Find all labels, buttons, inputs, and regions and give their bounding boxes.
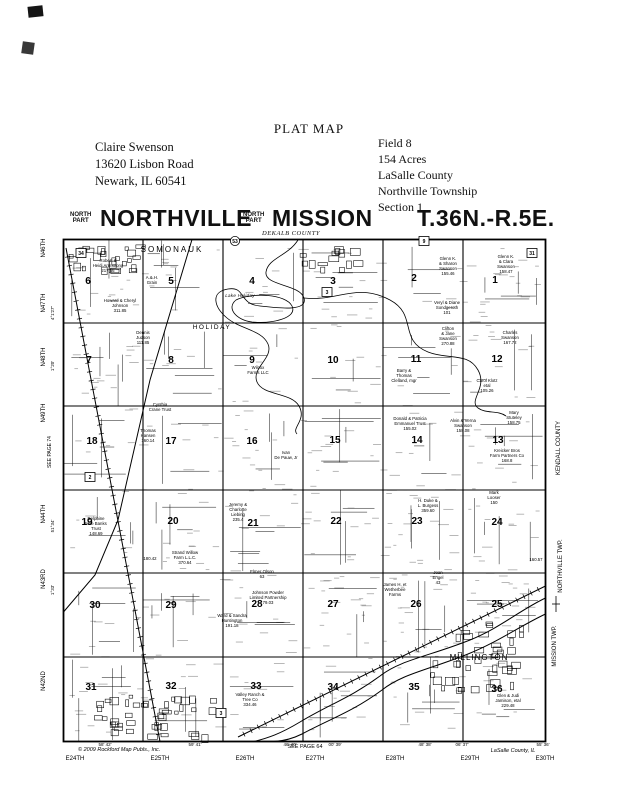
- print-noise: [512, 606, 519, 607]
- scan-artifact: [21, 41, 35, 55]
- print-noise: [365, 318, 372, 319]
- print-noise: [518, 349, 528, 350]
- town-lot: [132, 265, 136, 272]
- print-noise: [286, 652, 297, 653]
- print-noise: [245, 682, 249, 683]
- print-noise: [129, 408, 138, 409]
- print-noise: [522, 678, 532, 679]
- print-noise: [90, 621, 96, 622]
- print-noise: [448, 728, 456, 729]
- print-noise: [171, 424, 181, 425]
- print-noise: [398, 667, 402, 668]
- print-noise: [106, 375, 117, 376]
- print-noise: [482, 547, 492, 548]
- town-lot: [454, 661, 461, 667]
- print-noise: [277, 525, 285, 526]
- print-noise: [256, 362, 262, 363]
- print-noise: [369, 308, 372, 309]
- print-noise: [477, 712, 482, 713]
- print-noise: [524, 583, 529, 584]
- print-noise: [94, 378, 101, 379]
- town-lot: [133, 703, 140, 707]
- print-noise: [400, 607, 410, 608]
- print-noise: [270, 391, 280, 392]
- place-label: Lake Holiday: [225, 293, 255, 298]
- edge-label-right: KENDALL COUNTY: [556, 421, 562, 475]
- print-noise: [172, 309, 178, 310]
- town-lot: [127, 721, 135, 726]
- print-noise: [491, 339, 502, 340]
- town-lot: [339, 268, 344, 273]
- print-noise: [357, 357, 365, 358]
- section-number: 14: [411, 435, 423, 446]
- print-noise: [272, 270, 280, 271]
- print-noise: [359, 598, 363, 599]
- print-noise: [348, 556, 351, 557]
- parcel-label: 111.85: [137, 340, 150, 345]
- town-lot: [128, 259, 132, 263]
- print-noise: [509, 583, 513, 584]
- print-noise: [139, 444, 148, 445]
- print-noise: [451, 474, 460, 475]
- print-noise: [410, 413, 420, 414]
- print-noise: [255, 450, 258, 451]
- print-noise: [86, 451, 91, 452]
- railroad-tie: [149, 698, 154, 699]
- print-noise: [232, 445, 239, 446]
- railroad-tie: [151, 707, 156, 708]
- town-lot: [433, 677, 441, 685]
- print-noise: [402, 574, 408, 575]
- lake-holiday-shore: [232, 295, 293, 322]
- railroad-tie: [146, 681, 151, 682]
- town-lot: [456, 634, 460, 641]
- print-noise: [509, 525, 517, 526]
- edge-road-label-left: N49TH: [41, 403, 47, 422]
- print-noise: [180, 568, 186, 569]
- railroad-tie: [136, 628, 141, 629]
- railroad-tie: [114, 513, 119, 514]
- railroad-tie: [67, 265, 72, 266]
- print-noise: [422, 301, 432, 302]
- town-lot: [441, 686, 444, 691]
- print-noise: [515, 397, 518, 398]
- print-noise: [295, 358, 298, 359]
- print-noise: [320, 625, 324, 626]
- print-noise: [164, 263, 168, 264]
- print-noise: [218, 388, 222, 389]
- print-noise: [485, 519, 491, 520]
- print-noise: [490, 332, 495, 333]
- print-noise: [80, 667, 88, 668]
- print-noise: [150, 615, 159, 616]
- edge-label-right: MISSION TWP.: [552, 625, 558, 666]
- print-noise: [480, 301, 490, 302]
- print-noise: [188, 676, 198, 677]
- print-noise: [331, 316, 337, 317]
- print-noise: [480, 304, 485, 305]
- print-noise: [273, 311, 283, 312]
- print-noise: [73, 354, 81, 355]
- print-noise: [98, 684, 108, 685]
- print-noise: [405, 612, 413, 613]
- town-lot: [159, 715, 166, 721]
- print-noise: [303, 271, 310, 272]
- section-number: 17: [165, 436, 177, 447]
- print-noise: [349, 296, 352, 297]
- print-noise: [320, 580, 330, 581]
- plat-map-page: { "page_title": "PLAT MAP", "owner_block…: [0, 0, 618, 800]
- print-noise: [75, 440, 81, 441]
- print-noise: [88, 725, 95, 726]
- print-noise: [516, 619, 522, 620]
- town-lot: [520, 632, 524, 638]
- town-lot: [461, 630, 470, 634]
- edge-road-label-left: N46TH: [41, 238, 47, 257]
- town-lot: [126, 729, 133, 734]
- print-noise: [149, 285, 154, 286]
- print-noise: [128, 442, 135, 443]
- print-noise: [364, 643, 369, 644]
- survey-minute-mark: 06' 37': [456, 742, 469, 747]
- print-noise: [310, 328, 316, 329]
- town-lot: [129, 269, 137, 273]
- print-noise: [389, 578, 397, 579]
- railroad-tie: [139, 645, 144, 646]
- print-noise: [520, 593, 528, 594]
- print-noise: [476, 506, 480, 507]
- print-noise: [449, 552, 459, 553]
- print-noise: [316, 470, 319, 471]
- railroad-tie: [154, 725, 159, 726]
- print-noise: [224, 438, 233, 439]
- section-number: 20: [167, 516, 179, 527]
- place-label: MILLINGTON: [450, 653, 509, 662]
- print-noise: [144, 360, 154, 361]
- print-noise: [531, 537, 539, 538]
- edge-road-label-bottom: E28TH: [386, 756, 405, 762]
- route-shield-number: 2: [89, 475, 92, 481]
- section-number: 29: [165, 600, 177, 611]
- print-noise: [187, 533, 193, 534]
- section-number: 33: [250, 681, 262, 692]
- railroad-tie: [111, 495, 116, 496]
- print-noise: [364, 523, 371, 524]
- print-noise: [94, 387, 97, 388]
- railroad-tie: [70, 283, 75, 284]
- print-noise: [293, 494, 296, 495]
- print-noise: [454, 412, 462, 413]
- print-noise: [220, 579, 231, 580]
- print-noise: [231, 570, 241, 571]
- section-number: 4: [249, 276, 255, 287]
- railroad-tie: [119, 539, 124, 540]
- print-noise: [500, 248, 504, 249]
- section-number: 16: [246, 436, 258, 447]
- edge-road-label-bottom: E25TH: [151, 756, 170, 762]
- railroad-tie: [122, 557, 127, 558]
- print-noise: [288, 640, 297, 641]
- section-number: 15: [329, 435, 341, 446]
- plat-map-svg: 3453931332Robert &Heidi Armstrong217.56H…: [0, 236, 618, 800]
- print-noise: [236, 642, 243, 643]
- print-noise: [347, 314, 357, 315]
- print-noise: [340, 576, 345, 577]
- print-noise: [133, 304, 139, 305]
- print-noise: [76, 267, 84, 268]
- print-noise: [111, 276, 118, 277]
- print-noise: [174, 349, 182, 350]
- print-noise: [496, 663, 505, 664]
- print-noise: [516, 514, 524, 515]
- print-noise: [275, 484, 286, 485]
- print-noise: [460, 281, 468, 282]
- print-noise: [334, 578, 339, 579]
- railroad-tie: [79, 327, 84, 328]
- parcel-label: 105.26: [480, 388, 494, 393]
- parcel-label: 370.64: [178, 560, 192, 565]
- print-noise: [202, 425, 208, 426]
- print-noise: [473, 335, 478, 336]
- print-noise: [273, 440, 278, 441]
- parcel-label: 101: [443, 310, 451, 315]
- print-noise: [471, 593, 476, 594]
- print-noise: [163, 543, 171, 544]
- route-shield-number: 9: [423, 239, 426, 245]
- print-noise: [170, 267, 177, 268]
- edge-road-label-left: N43RD: [41, 569, 47, 589]
- print-noise: [156, 655, 162, 656]
- print-noise: [308, 452, 313, 453]
- town-lot: [125, 713, 132, 718]
- print-noise: [182, 439, 190, 440]
- print-noise: [262, 286, 267, 287]
- route-shield-number: 31: [529, 251, 535, 257]
- print-noise: [475, 643, 480, 644]
- print-noise: [129, 362, 138, 363]
- print-noise: [361, 684, 372, 685]
- railroad-tie: [127, 583, 132, 584]
- railroad-tie: [126, 575, 131, 576]
- print-noise: [124, 552, 127, 553]
- print-noise: [230, 676, 239, 677]
- railroad-tie: [112, 504, 117, 505]
- print-noise: [345, 360, 355, 361]
- print-noise: [70, 654, 80, 655]
- print-noise: [415, 712, 424, 713]
- town-lot: [510, 638, 513, 645]
- print-noise: [186, 664, 196, 665]
- parcel-label: 160.14: [141, 438, 155, 443]
- railroad-tie: [117, 530, 122, 531]
- print-noise: [449, 579, 457, 580]
- print-noise: [331, 324, 337, 325]
- print-noise: [106, 732, 111, 733]
- print-noise: [106, 445, 110, 446]
- parcel-label: 334.46: [243, 702, 257, 707]
- survey-minute-mark: 59' 41': [189, 742, 202, 747]
- edge-road-label-bottom: E29TH: [461, 756, 480, 762]
- town-lot: [318, 263, 328, 266]
- railroad-tie: [104, 460, 109, 461]
- print-noise: [87, 314, 91, 315]
- section-number: 9: [249, 355, 255, 366]
- print-noise: [127, 280, 131, 281]
- town-lot: [445, 677, 454, 685]
- edge-road-label-left: 1°20': [50, 361, 55, 371]
- map-corner-note: © 2009 Rockford Map Publs., Inc.: [78, 746, 160, 753]
- railroad-tie: [129, 592, 134, 593]
- print-noise: [97, 380, 104, 381]
- print-noise: [372, 518, 379, 519]
- print-noise: [126, 346, 132, 347]
- print-noise: [393, 579, 396, 580]
- print-noise: [76, 520, 79, 521]
- section-number: 25: [491, 599, 503, 610]
- railroad-tie: [68, 274, 73, 275]
- print-noise: [183, 469, 194, 470]
- print-noise: [347, 559, 354, 560]
- print-noise: [449, 535, 458, 536]
- parcel-label: 155.02: [403, 426, 417, 431]
- parcel-label: 43: [436, 580, 441, 585]
- print-noise: [370, 384, 381, 385]
- print-noise: [291, 503, 298, 504]
- survey-minute-mark: 48' 38': [419, 742, 432, 747]
- map-corner-note: SEE PAGE 64: [287, 744, 322, 750]
- print-noise: [123, 547, 132, 548]
- print-noise: [479, 561, 485, 562]
- parcel-label: De Pauw, Jr: [274, 455, 298, 460]
- print-noise: [370, 455, 373, 456]
- print-noise: [463, 302, 468, 303]
- parcel-label: 155.46: [441, 271, 455, 276]
- print-noise: [381, 555, 390, 556]
- print-noise: [475, 580, 479, 581]
- field-county: LaSalle County: [378, 167, 477, 183]
- print-noise: [263, 488, 266, 489]
- town-lot: [508, 647, 516, 654]
- railroad-tie: [77, 318, 82, 319]
- parcel-label: 359.60: [421, 508, 435, 513]
- print-noise: [178, 493, 187, 494]
- print-noise: [108, 296, 111, 297]
- town-lot: [159, 709, 168, 713]
- print-noise: [298, 249, 308, 250]
- print-noise: [393, 545, 396, 546]
- print-noise: [376, 263, 387, 264]
- print-noise: [410, 495, 418, 496]
- section-number: 31: [85, 682, 97, 693]
- print-noise: [376, 366, 381, 367]
- print-noise: [479, 312, 486, 313]
- section-number: 30: [89, 600, 101, 611]
- print-noise: [314, 520, 321, 521]
- railroad-tie: [94, 407, 99, 408]
- town-lot: [329, 256, 339, 262]
- railroad-tie: [124, 566, 129, 567]
- print-noise: [474, 429, 481, 430]
- print-noise: [513, 588, 517, 589]
- print-noise: [470, 321, 481, 322]
- railroad-tie: [134, 619, 139, 620]
- parcel-label: 167.72: [503, 340, 517, 345]
- print-noise: [454, 713, 464, 714]
- scan-artifact: [27, 5, 43, 18]
- edge-road-label-left: 1°33': [50, 585, 55, 595]
- print-noise: [521, 296, 530, 297]
- railroad-tie: [92, 398, 97, 399]
- page-title: PLAT MAP: [0, 121, 618, 137]
- town-lot: [117, 723, 122, 727]
- print-noise: [163, 561, 167, 562]
- print-noise: [260, 632, 268, 633]
- print-noise: [125, 410, 133, 411]
- print-noise: [323, 645, 329, 646]
- section-number: 26: [410, 599, 422, 610]
- town-lot: [354, 261, 363, 267]
- print-noise: [381, 355, 386, 356]
- print-noise: [217, 250, 220, 251]
- north-part-label-2: NORTHPART: [243, 212, 264, 224]
- print-noise: [277, 671, 285, 672]
- print-noise: [373, 444, 381, 445]
- edge-road-label-left: 51°34': [50, 520, 55, 533]
- print-noise: [495, 366, 503, 367]
- owner-name: Claire Swenson: [95, 139, 194, 156]
- print-noise: [495, 468, 504, 469]
- town-lot: [82, 266, 85, 271]
- print-noise: [263, 292, 268, 293]
- print-noise: [111, 387, 117, 388]
- place-label: HOLIDAY: [193, 324, 232, 331]
- print-noise: [326, 666, 336, 667]
- edge-road-label-left: N44TH: [41, 504, 47, 523]
- print-noise: [386, 493, 392, 494]
- print-noise: [444, 569, 452, 570]
- print-noise: [483, 666, 494, 667]
- route-shield-number: 3: [220, 711, 223, 717]
- print-noise: [398, 385, 404, 386]
- print-noise: [233, 401, 236, 402]
- print-noise: [473, 556, 481, 557]
- print-noise: [416, 485, 425, 486]
- print-noise: [403, 523, 411, 524]
- route-shield-number: 3: [326, 290, 329, 296]
- print-noise: [518, 260, 527, 261]
- railroad-tie: [131, 601, 136, 602]
- section-number: 2: [411, 273, 417, 284]
- print-noise: [457, 268, 462, 269]
- town-lot: [466, 666, 471, 671]
- parcel-label: 270.88: [441, 341, 455, 346]
- section-number: 21: [247, 518, 259, 529]
- print-noise: [394, 697, 397, 698]
- print-noise: [348, 391, 358, 392]
- section-number: 36: [491, 684, 503, 695]
- print-noise: [311, 493, 320, 494]
- edge-road-label-left: N48TH: [41, 347, 47, 366]
- parcel-label: 148.69: [89, 531, 103, 536]
- print-noise: [330, 377, 336, 378]
- print-noise: [208, 617, 215, 618]
- print-noise: [141, 697, 148, 698]
- town-lot: [192, 733, 199, 739]
- print-noise: [120, 289, 123, 290]
- parcel-label: Farms LLC: [247, 370, 268, 375]
- town-lot: [164, 702, 168, 708]
- print-noise: [321, 590, 325, 591]
